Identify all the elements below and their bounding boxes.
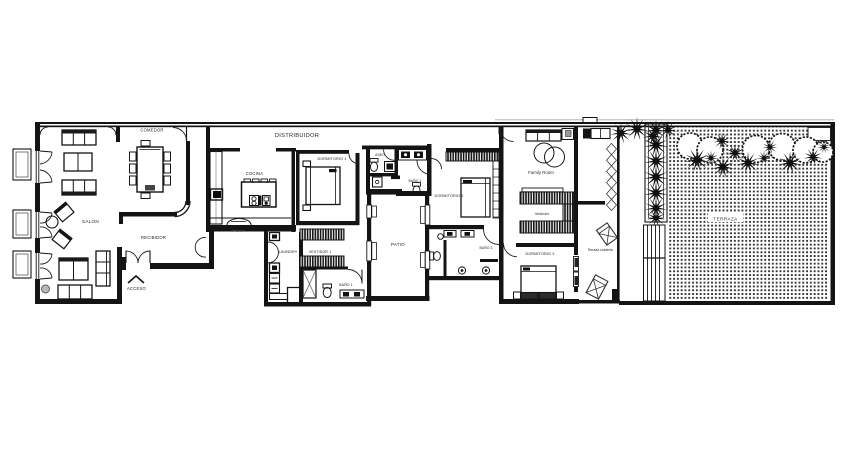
svg-text:VESTIDOR 1: VESTIDOR 1	[309, 250, 331, 254]
svg-text:Terraza cubierta: Terraza cubierta	[587, 248, 612, 252]
svg-text:Family Room: Family Room	[528, 170, 554, 175]
svg-text:RECIBIDOR: RECIBIDOR	[141, 235, 166, 240]
svg-text:ASEO: ASEO	[375, 153, 385, 157]
svg-text:DORMITORIO 2: DORMITORIO 2	[435, 194, 464, 198]
svg-text:BAÑO 1: BAÑO 1	[339, 282, 353, 287]
svg-text:COCINA: COCINA	[246, 171, 264, 176]
svg-text:LAUNDRY: LAUNDRY	[279, 250, 298, 254]
svg-text:DORMITORIO 1: DORMITORIO 1	[318, 157, 347, 161]
svg-text:PATIO: PATIO	[391, 242, 405, 247]
svg-text:DORMITORIO 3: DORMITORIO 3	[526, 252, 555, 256]
svg-text:ACCESO: ACCESO	[127, 286, 146, 291]
svg-text:TERRAZA: TERRAZA	[713, 217, 738, 222]
svg-text:BAÑO 3: BAÑO 3	[479, 245, 492, 250]
svg-text:Vestidor: Vestidor	[535, 212, 550, 216]
svg-text:DISTRIBUIDOR: DISTRIBUIDOR	[275, 133, 319, 139]
svg-text:COMEDOR: COMEDOR	[140, 128, 163, 133]
svg-text:BANCADA: BANCADA	[232, 229, 245, 233]
svg-text:SALON: SALON	[82, 219, 99, 224]
